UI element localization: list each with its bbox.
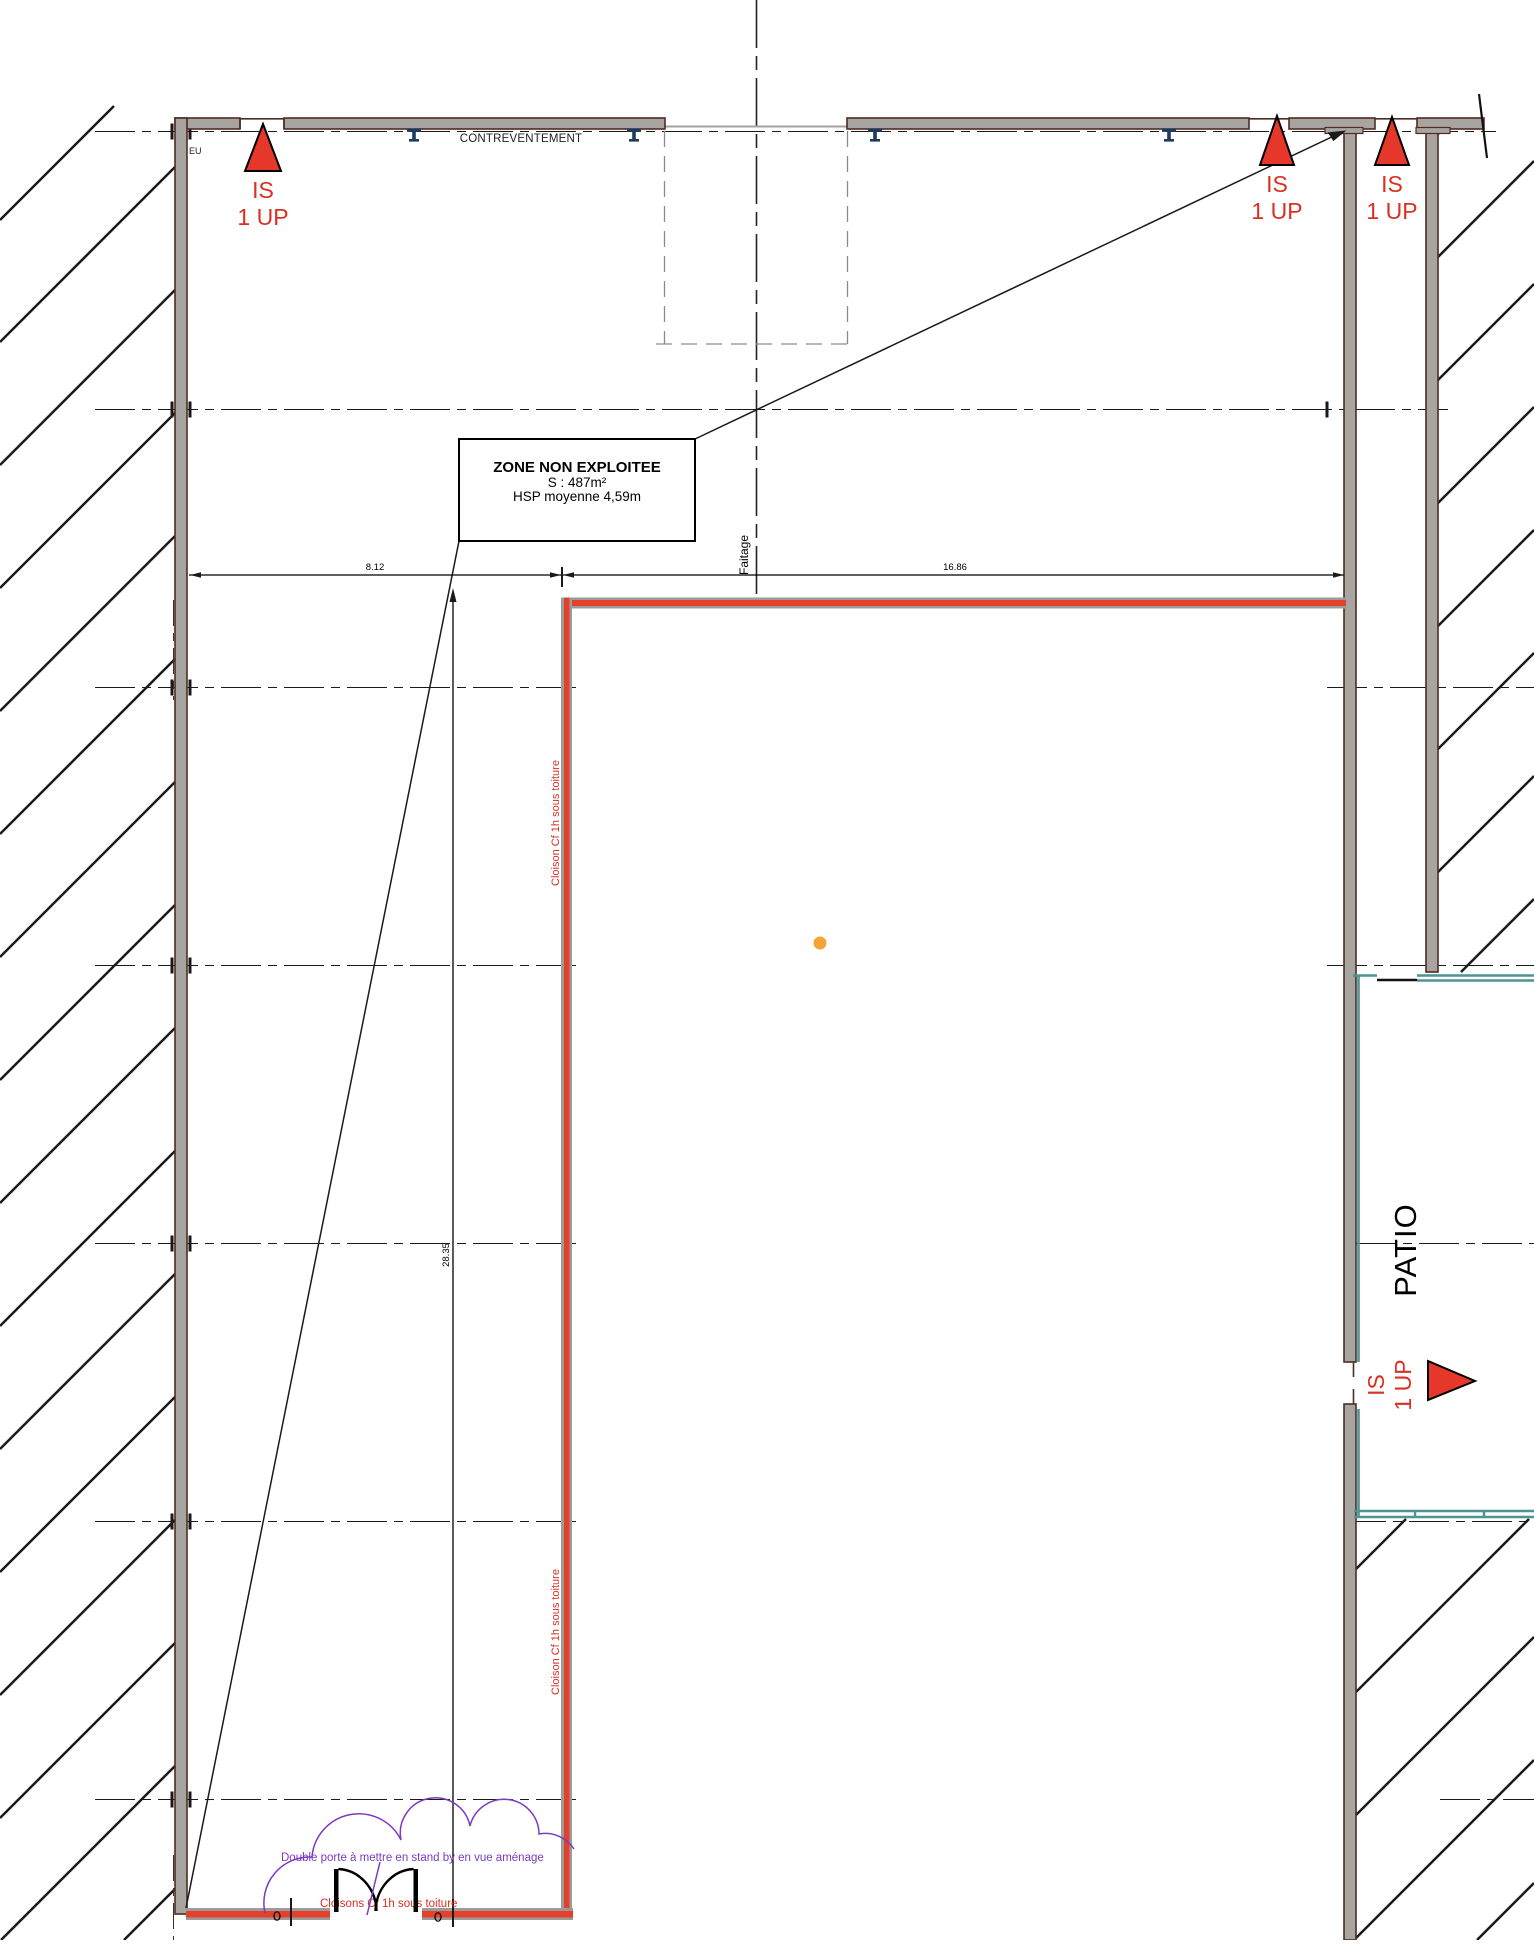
svg-text:28.35: 28.35 bbox=[441, 1243, 452, 1267]
svg-text:HSP moyenne 4,59m: HSP moyenne 4,59m bbox=[513, 489, 641, 504]
svg-text:8.12: 8.12 bbox=[366, 562, 385, 573]
svg-text:1 UP: 1 UP bbox=[1390, 1359, 1416, 1410]
svg-text:16.86: 16.86 bbox=[943, 562, 967, 573]
svg-text:PATIO: PATIO bbox=[1388, 1203, 1423, 1296]
svg-text:IS: IS bbox=[252, 177, 274, 203]
svg-text:IS: IS bbox=[1266, 171, 1288, 197]
svg-text:Cloisons Cf 1h sous toiture: Cloisons Cf 1h sous toiture bbox=[320, 1898, 457, 1910]
svg-text:EU: EU bbox=[189, 146, 202, 156]
svg-text:Double porte à mettre en stand: Double porte à mettre en stand by en vue… bbox=[281, 1852, 544, 1864]
svg-text:CONTREVENTEMENT: CONTREVENTEMENT bbox=[460, 133, 582, 145]
svg-text:Faitage: Faitage bbox=[737, 535, 751, 575]
svg-text:S : 487m²: S : 487m² bbox=[548, 475, 607, 490]
svg-text:1 UP: 1 UP bbox=[237, 204, 288, 230]
svg-text:1 UP: 1 UP bbox=[1251, 198, 1302, 224]
svg-text:IS: IS bbox=[1363, 1374, 1389, 1396]
svg-text:Cloison Cf 1h sous toiture: Cloison Cf 1h sous toiture bbox=[550, 760, 562, 886]
svg-text:ZONE NON EXPLOITEE: ZONE NON EXPLOITEE bbox=[493, 459, 661, 476]
svg-text:IS: IS bbox=[1381, 171, 1403, 197]
svg-text:Cloison Cf 1h sous toiture: Cloison Cf 1h sous toiture bbox=[550, 1569, 562, 1695]
svg-text:1 UP: 1 UP bbox=[1366, 198, 1417, 224]
